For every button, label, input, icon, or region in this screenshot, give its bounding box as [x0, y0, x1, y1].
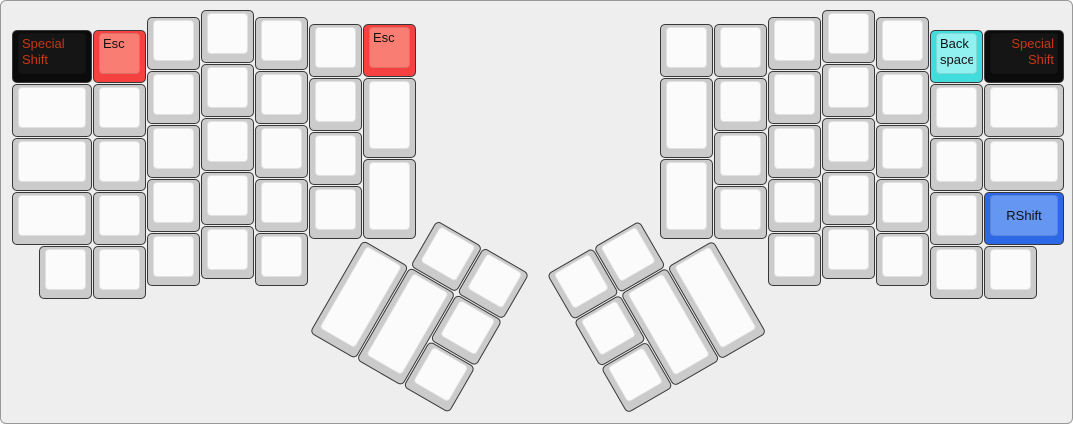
key-blank[interactable] [147, 17, 200, 70]
key-blank[interactable] [255, 71, 308, 124]
keycap-top [207, 175, 248, 216]
key-blank[interactable] [876, 71, 929, 124]
keycap-top [828, 175, 869, 216]
key-blank[interactable] [876, 17, 929, 70]
key-blank[interactable] [309, 24, 362, 77]
keycap-top [990, 249, 1031, 290]
key-blank[interactable] [93, 192, 146, 245]
key-blank[interactable] [147, 71, 200, 124]
key-blank[interactable] [255, 17, 308, 70]
key-blank[interactable] [822, 172, 875, 225]
key-blank[interactable] [39, 246, 92, 299]
keycap-top [936, 87, 977, 128]
keycap-top [153, 74, 194, 115]
key-blank[interactable] [768, 179, 821, 232]
keycap-top [467, 252, 523, 308]
keycap-top [666, 81, 707, 149]
keycap-top [936, 249, 977, 290]
key-label: Special Shift [994, 36, 1054, 71]
key-esc-left-inner[interactable]: Esc [363, 24, 416, 77]
key-blank[interactable] [930, 192, 983, 245]
key-blank[interactable] [822, 64, 875, 117]
key-blank[interactable] [714, 186, 767, 239]
key-special-shift-left[interactable]: Special Shift [12, 30, 92, 83]
key-esc-left-top[interactable]: Esc [93, 30, 146, 83]
key-blank[interactable] [768, 71, 821, 124]
key-label: Esc [373, 30, 406, 65]
keycap-top [261, 128, 302, 169]
keycap-top [261, 20, 302, 61]
key-blank[interactable] [309, 186, 362, 239]
key-blank[interactable] [660, 24, 713, 77]
key-blank[interactable] [201, 226, 254, 279]
keycap-top [18, 195, 86, 236]
keycap-top [828, 229, 869, 270]
key-blank[interactable] [822, 118, 875, 171]
key-blank[interactable] [876, 179, 929, 232]
keycap-top [315, 81, 356, 122]
key-blank[interactable] [984, 138, 1064, 191]
key-blank[interactable] [201, 118, 254, 171]
keycap-top [153, 182, 194, 223]
keycap-top [882, 236, 923, 277]
key-blank[interactable] [768, 17, 821, 70]
key-blank[interactable] [984, 246, 1037, 299]
keycap-top [153, 20, 194, 61]
key-blank[interactable] [876, 233, 929, 286]
keycap-top [315, 189, 356, 230]
key-blank[interactable] [309, 132, 362, 185]
keycap-top [882, 20, 923, 61]
key-blank[interactable] [147, 179, 200, 232]
keycap-top [720, 27, 761, 68]
key-label: Esc [103, 36, 136, 71]
keycap-top [828, 13, 869, 54]
keycap-top [720, 189, 761, 230]
key-blank[interactable] [93, 138, 146, 191]
keycap-top [828, 67, 869, 108]
keycap-top [207, 67, 248, 108]
keycap-top [261, 74, 302, 115]
key-blank[interactable] [660, 159, 713, 239]
key-blank[interactable] [93, 246, 146, 299]
keycap-top [774, 128, 815, 169]
keycap-top [990, 87, 1058, 128]
key-blank[interactable] [822, 226, 875, 279]
key-label: Back space [940, 36, 973, 71]
keycap-top [261, 236, 302, 277]
keycap-top [936, 195, 977, 236]
keycap-top [315, 27, 356, 68]
key-blank[interactable] [93, 84, 146, 137]
key-blank[interactable] [714, 132, 767, 185]
key-blank[interactable] [363, 78, 416, 158]
keycap-top [882, 182, 923, 223]
key-blank[interactable] [822, 10, 875, 63]
keycap-top [261, 182, 302, 223]
keycap-top [18, 141, 86, 182]
key-backspace[interactable]: Back space [930, 30, 983, 83]
key-blank[interactable] [363, 159, 416, 239]
keycap-top [774, 74, 815, 115]
keycap-top [936, 141, 977, 182]
key-blank[interactable] [984, 84, 1064, 137]
keycap-top [315, 135, 356, 176]
key-blank[interactable] [714, 24, 767, 77]
keycap-top [45, 249, 86, 290]
keycap-top [828, 121, 869, 162]
key-blank[interactable] [309, 78, 362, 131]
key-blank[interactable] [768, 233, 821, 286]
keycap-top [207, 121, 248, 162]
key-special-shift-right[interactable]: Special Shift [984, 30, 1064, 83]
keycap-top [774, 182, 815, 223]
key-blank[interactable] [147, 233, 200, 286]
keycap-top [369, 81, 410, 149]
keycap-top [990, 141, 1058, 182]
key-blank[interactable] [255, 179, 308, 232]
key-blank[interactable] [201, 10, 254, 63]
key-label: Special Shift [22, 36, 82, 71]
key-blank[interactable] [930, 84, 983, 137]
keycap-top [153, 236, 194, 277]
keycap-top [774, 236, 815, 277]
keyboard-canvas: Special ShiftEscEscBack spaceSpecial Shi… [0, 0, 1073, 424]
key-blank[interactable] [876, 125, 929, 178]
key-blank[interactable] [201, 64, 254, 117]
key-blank[interactable] [201, 172, 254, 225]
key-blank[interactable] [12, 192, 92, 245]
key-blank[interactable] [714, 78, 767, 131]
keycap-top [207, 13, 248, 54]
keycap-top [882, 74, 923, 115]
keycap-top [207, 229, 248, 270]
keycap-top [18, 87, 86, 128]
key-blank[interactable] [768, 125, 821, 178]
keycap-top [666, 27, 707, 68]
keycap-top [720, 135, 761, 176]
keycap-top [99, 249, 140, 290]
key-blank[interactable] [12, 84, 92, 137]
key-blank[interactable] [255, 233, 308, 286]
keycap-top [600, 226, 656, 282]
key-blank[interactable] [930, 246, 983, 299]
keycap-top [720, 81, 761, 122]
keycap-top [153, 128, 194, 169]
key-blank[interactable] [660, 78, 713, 158]
key-blank[interactable] [147, 125, 200, 178]
keycap-top [369, 162, 410, 230]
keycap-top [882, 128, 923, 169]
key-label: RShift [994, 198, 1054, 233]
keycap-top [99, 87, 140, 128]
key-rshift[interactable]: RShift [984, 192, 1064, 245]
key-blank[interactable] [930, 138, 983, 191]
keycap-top [99, 141, 140, 182]
keycap-top [99, 195, 140, 236]
keycap-top [666, 162, 707, 230]
key-blank[interactable] [255, 125, 308, 178]
key-blank[interactable] [12, 138, 92, 191]
keycap-top [774, 20, 815, 61]
